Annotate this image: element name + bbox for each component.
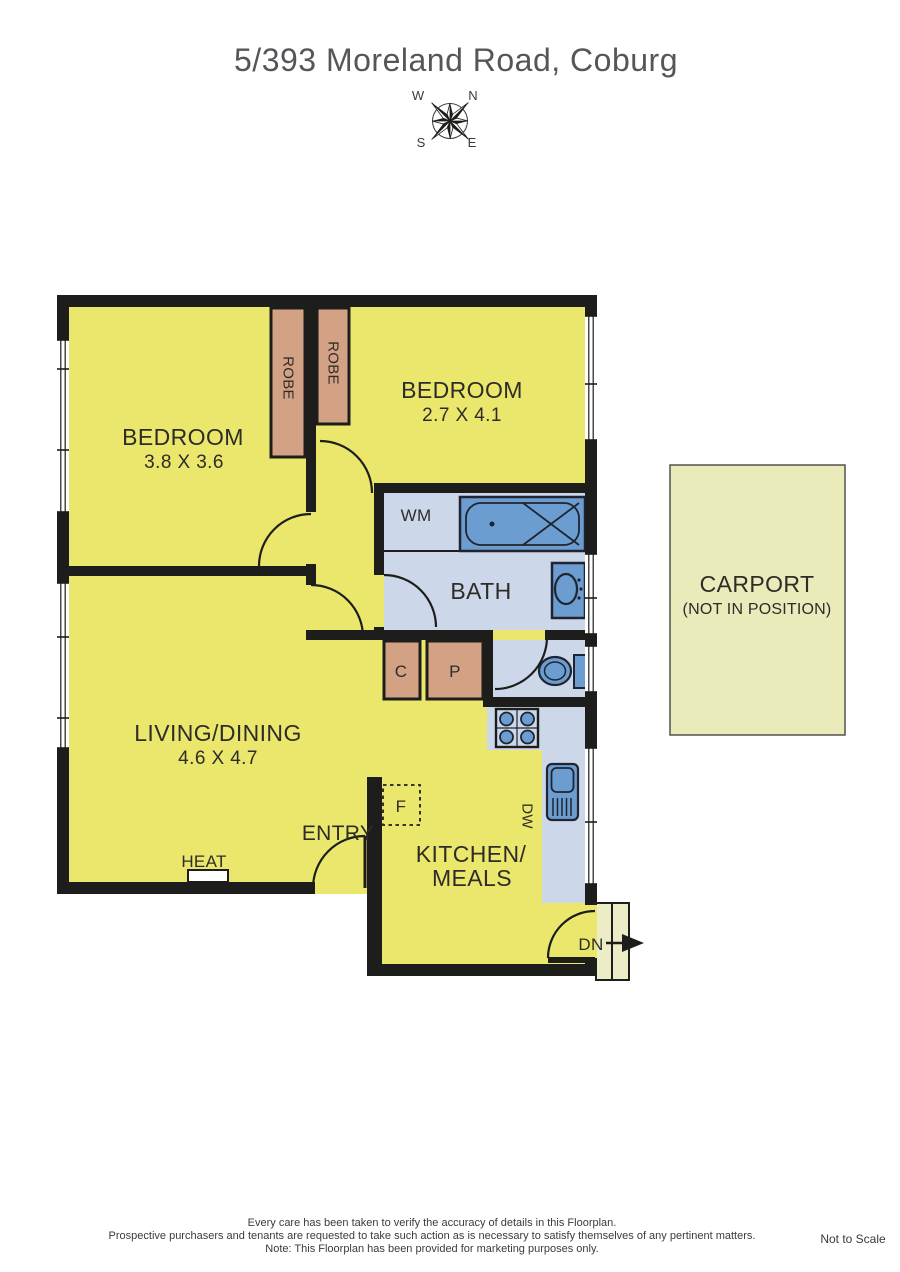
disclaimer-line2: Prospective purchasers and tenants are r… bbox=[109, 1230, 756, 1242]
living-label: LIVING/DINING bbox=[134, 720, 302, 746]
pantry-label: P bbox=[449, 662, 461, 681]
dw-label: DW bbox=[519, 803, 536, 829]
stove-icon bbox=[496, 709, 538, 747]
heater-icon bbox=[188, 870, 228, 882]
disclaimer-line3: Note: This Floorplan has been provided f… bbox=[265, 1243, 598, 1255]
footer: Every care has been taken to verify the … bbox=[109, 1217, 886, 1255]
page-title: 5/393 Moreland Road, Coburg bbox=[234, 42, 678, 78]
kitchen-label-line2: MEALS bbox=[432, 865, 512, 891]
window-bedroom2 bbox=[585, 316, 597, 440]
bedroom2-label: BEDROOM bbox=[401, 377, 523, 403]
window-kitchen bbox=[585, 748, 597, 884]
disclaimer-line1: Every care has been taken to verify the … bbox=[248, 1217, 617, 1229]
heat-label: HEAT bbox=[181, 852, 226, 871]
floorplan-page: 5/393 Moreland Road, Coburg W N S E bbox=[0, 0, 900, 1272]
dn-label: DN bbox=[578, 935, 603, 954]
entry-label: ENTRY bbox=[302, 822, 374, 845]
carport-note: (NOT IN POSITION) bbox=[683, 601, 832, 618]
bath-label: BATH bbox=[450, 578, 511, 604]
carport-area: CARPORT (NOT IN POSITION) bbox=[670, 465, 845, 735]
window-bath bbox=[585, 554, 597, 634]
carport-label: CARPORT bbox=[700, 571, 815, 597]
robe2-label: ROBE bbox=[325, 341, 342, 385]
robe1-label: ROBE bbox=[280, 356, 297, 400]
living-dims: 4.6 X 4.7 bbox=[178, 748, 258, 769]
compass-east-label: E bbox=[468, 135, 477, 150]
kitchen-label-line1: KITCHEN/ bbox=[416, 841, 527, 867]
window-bedroom1 bbox=[57, 340, 69, 512]
not-to-scale-note: Not to Scale bbox=[820, 1232, 886, 1246]
floorplan-canvas: 5/393 Moreland Road, Coburg W N S E bbox=[0, 0, 900, 1272]
basin-icon bbox=[552, 563, 585, 618]
kitchen-sink-icon bbox=[547, 764, 578, 820]
fridge-label: F bbox=[396, 797, 407, 816]
bedroom1-dims: 3.8 X 3.6 bbox=[144, 452, 224, 473]
toilet-icon bbox=[539, 655, 586, 688]
compass-west-label: W bbox=[412, 88, 425, 103]
door-exit-leaf bbox=[548, 957, 595, 963]
bedroom1-label: BEDROOM bbox=[122, 424, 244, 450]
wm-label: WM bbox=[401, 506, 432, 525]
bathtub-icon bbox=[460, 497, 585, 551]
window-living bbox=[57, 583, 69, 748]
compass-north-label: N bbox=[468, 88, 477, 103]
window-wc bbox=[585, 646, 597, 692]
compass-rose-icon: W N S E bbox=[412, 88, 478, 150]
cupboard-label: C bbox=[395, 662, 408, 681]
compass-south-label: S bbox=[417, 135, 426, 150]
bedroom2-dims: 2.7 X 4.1 bbox=[422, 405, 502, 426]
